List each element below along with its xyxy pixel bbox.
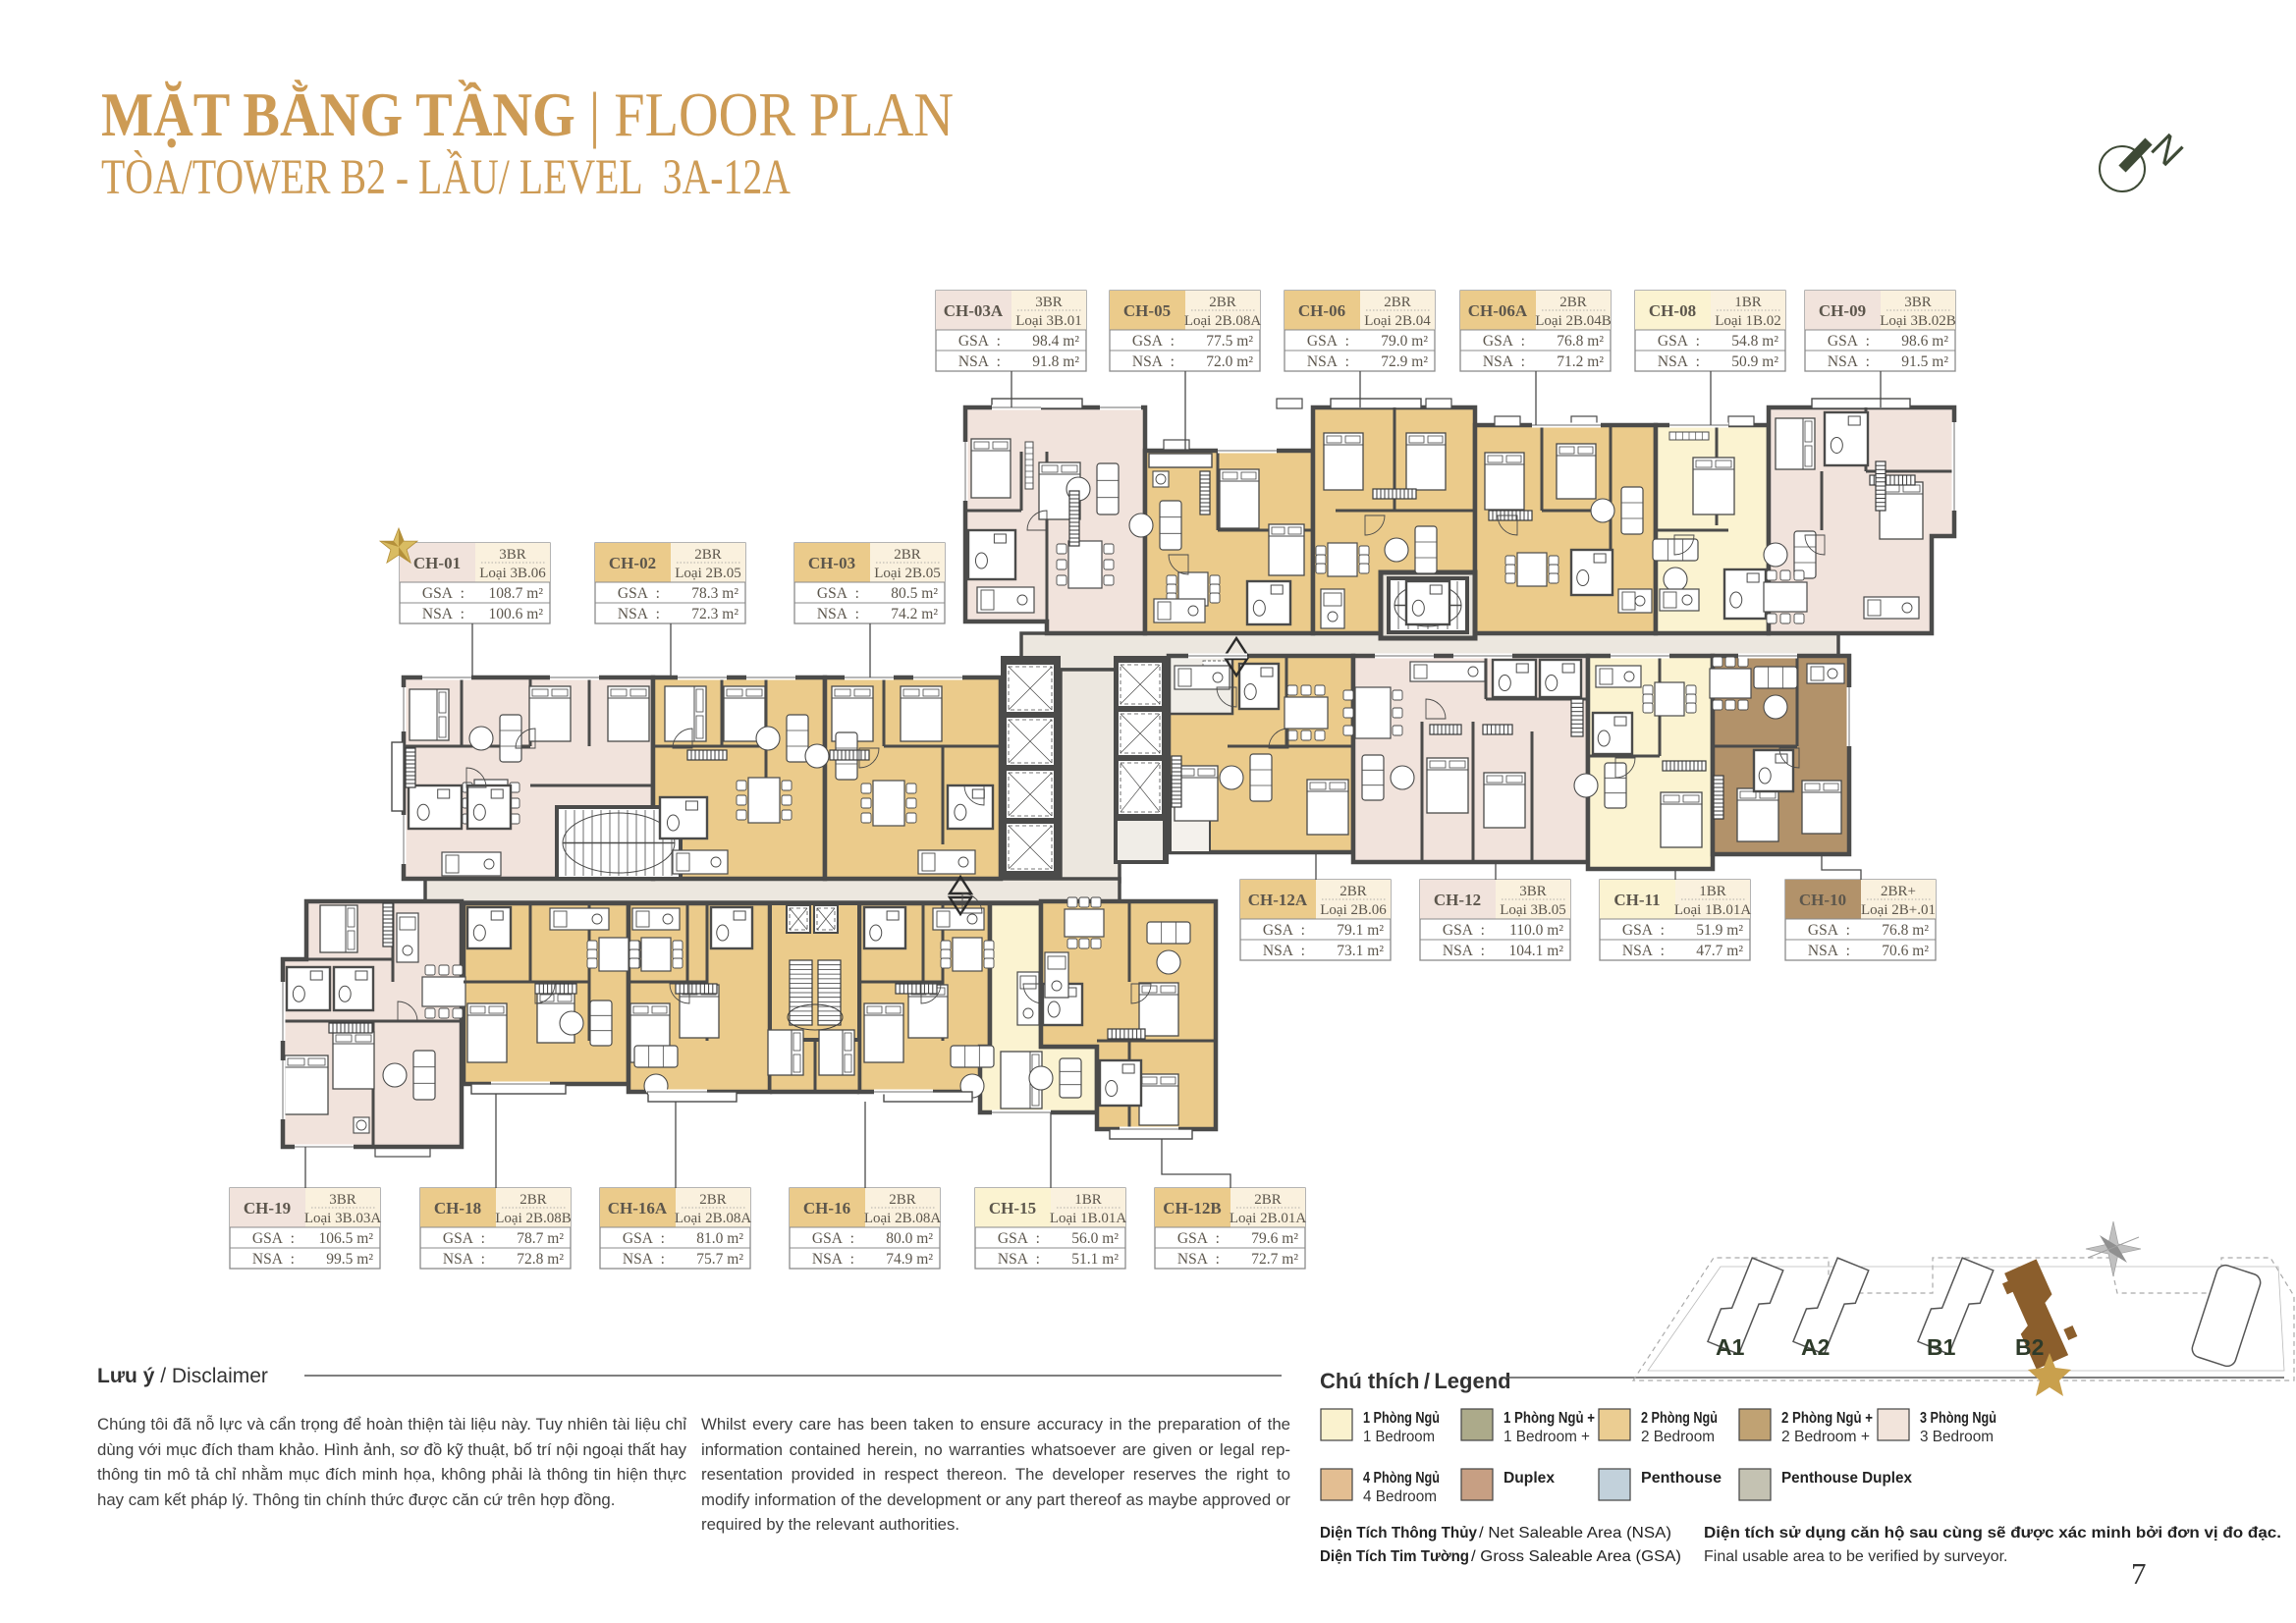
svg-text:GSA :: GSA : bbox=[1622, 922, 1665, 939]
svg-text:1 Bedroom: 1 Bedroom bbox=[1363, 1429, 1435, 1445]
svg-text:2 Phòng Ngủ: 2 Phòng Ngủ bbox=[1641, 1410, 1718, 1427]
svg-text:CH-18: CH-18 bbox=[434, 1199, 481, 1217]
svg-text:110.0 m²: 110.0 m² bbox=[1509, 922, 1563, 939]
svg-text:A1: A1 bbox=[1716, 1334, 1745, 1360]
svg-text:78.7 m²: 78.7 m² bbox=[517, 1230, 564, 1247]
svg-text:2BR: 2BR bbox=[1209, 295, 1236, 310]
svg-text:Chú thích / Legend: Chú thích / Legend bbox=[1320, 1369, 1511, 1393]
svg-text:51.9 m²: 51.9 m² bbox=[1696, 922, 1743, 939]
svg-text:/ Gross Saleable Area (GSA): / Gross Saleable Area (GSA) bbox=[1471, 1548, 1681, 1565]
svg-text:Loại 1B.02: Loại 1B.02 bbox=[1715, 313, 1781, 329]
svg-text:NSA :: NSA : bbox=[1658, 353, 1700, 370]
svg-text:GSA :: GSA : bbox=[1177, 1230, 1220, 1247]
svg-text:1BR: 1BR bbox=[1699, 884, 1726, 899]
svg-text:B1: B1 bbox=[1927, 1334, 1956, 1360]
svg-text:NSA :: NSA : bbox=[817, 606, 859, 622]
svg-text:74.2 m²: 74.2 m² bbox=[891, 606, 938, 622]
svg-text:NSA :: NSA : bbox=[998, 1251, 1040, 1268]
svg-text:3BR: 3BR bbox=[499, 547, 526, 563]
svg-text:76.8 m²: 76.8 m² bbox=[1882, 922, 1929, 939]
svg-text:NSA :: NSA : bbox=[443, 1251, 485, 1268]
svg-text:7: 7 bbox=[2131, 1556, 2147, 1591]
svg-text:79.0 m²: 79.0 m² bbox=[1381, 333, 1428, 350]
svg-text:CH-11: CH-11 bbox=[1613, 891, 1660, 909]
svg-text:GSA :: GSA : bbox=[812, 1230, 854, 1247]
svg-text:Loại 2B.08A: Loại 2B.08A bbox=[1184, 313, 1261, 329]
svg-text:Diện tích sử dụng căn hộ sau c: Diện tích sử dụng căn hộ sau cùng sẽ đượ… bbox=[1704, 1525, 2281, 1542]
svg-text:51.1 m²: 51.1 m² bbox=[1071, 1251, 1119, 1268]
svg-text:91.5 m²: 91.5 m² bbox=[1901, 353, 1948, 370]
svg-text:Loại 2B.04: Loại 2B.04 bbox=[1364, 313, 1431, 329]
svg-text:2 Bedroom +: 2 Bedroom + bbox=[1781, 1429, 1870, 1445]
svg-text:72.3 m²: 72.3 m² bbox=[691, 606, 738, 622]
svg-text:72.9 m²: 72.9 m² bbox=[1381, 353, 1428, 370]
svg-text:CH-15: CH-15 bbox=[989, 1199, 1036, 1217]
svg-text:Diện Tích Thông Thủy: Diện Tích Thông Thủy bbox=[1320, 1525, 1477, 1542]
svg-text:GSA :: GSA : bbox=[443, 1230, 485, 1247]
svg-text:Loại 3B.03A: Loại 3B.03A bbox=[304, 1211, 381, 1226]
svg-text:NSA :: NSA : bbox=[1177, 1251, 1220, 1268]
svg-text:Loại 2B+.01: Loại 2B+.01 bbox=[1861, 902, 1936, 918]
svg-text:54.8 m²: 54.8 m² bbox=[1731, 333, 1778, 350]
svg-text:GSA :: GSA : bbox=[1483, 333, 1525, 350]
svg-text:91.8 m²: 91.8 m² bbox=[1032, 353, 1079, 370]
svg-text:CH-16A: CH-16A bbox=[608, 1199, 668, 1217]
svg-text:CH-12B: CH-12B bbox=[1163, 1199, 1222, 1217]
svg-text:2BR: 2BR bbox=[694, 547, 722, 563]
svg-text:NSA :: NSA : bbox=[1828, 353, 1870, 370]
svg-text:4 Bedroom: 4 Bedroom bbox=[1363, 1488, 1437, 1505]
svg-text:3 Bedroom: 3 Bedroom bbox=[1920, 1429, 1994, 1445]
svg-text:74.9 m²: 74.9 m² bbox=[886, 1251, 933, 1268]
svg-text:GSA :: GSA : bbox=[1828, 333, 1870, 350]
svg-text:NSA :: NSA : bbox=[623, 1251, 665, 1268]
svg-text:NSA :: NSA : bbox=[1622, 943, 1665, 959]
svg-text:Duplex: Duplex bbox=[1503, 1470, 1555, 1487]
svg-text:2 Phòng Ngủ +: 2 Phòng Ngủ + bbox=[1781, 1410, 1873, 1427]
svg-text:NSA :: NSA : bbox=[1808, 943, 1850, 959]
svg-text:TÒA/TOWER B2 - LẦU/ LEVEL 3A-: TÒA/TOWER B2 - LẦU/ LEVEL 3A-12A bbox=[101, 149, 791, 205]
svg-text:72.8 m²: 72.8 m² bbox=[517, 1251, 564, 1268]
svg-text:Loại 3B.01: Loại 3B.01 bbox=[1015, 313, 1082, 329]
svg-text:108.7 m²: 108.7 m² bbox=[489, 585, 544, 602]
svg-text:NSA :: NSA : bbox=[1307, 353, 1349, 370]
svg-text:79.6 m²: 79.6 m² bbox=[1251, 1230, 1298, 1247]
svg-text:CH-03: CH-03 bbox=[808, 554, 855, 572]
svg-text:GSA :: GSA : bbox=[1307, 333, 1349, 350]
svg-text:GSA :: GSA : bbox=[252, 1230, 295, 1247]
svg-text:CH-02: CH-02 bbox=[609, 554, 656, 572]
svg-text:CH-12: CH-12 bbox=[1434, 891, 1481, 909]
svg-text:76.8 m²: 76.8 m² bbox=[1557, 333, 1604, 350]
svg-text:3BR: 3BR bbox=[1519, 884, 1547, 899]
svg-text:98.6 m²: 98.6 m² bbox=[1901, 333, 1948, 350]
svg-text:104.1 m²: 104.1 m² bbox=[1509, 943, 1564, 959]
svg-text:75.7 m²: 75.7 m² bbox=[696, 1251, 743, 1268]
svg-text:/ Net Saleable Area (NSA): / Net Saleable Area (NSA) bbox=[1479, 1525, 1671, 1542]
svg-text:Lưu ý / Disclaimer: Lưu ý / Disclaimer bbox=[97, 1365, 268, 1387]
svg-text:1 Phòng Ngủ: 1 Phòng Ngủ bbox=[1363, 1410, 1440, 1427]
svg-text:CH-12A: CH-12A bbox=[1248, 891, 1308, 909]
svg-text:Loại 2B.06: Loại 2B.06 bbox=[1320, 902, 1387, 918]
svg-text:GSA :: GSA : bbox=[998, 1230, 1040, 1247]
svg-text:2 Bedroom: 2 Bedroom bbox=[1641, 1429, 1715, 1445]
svg-text:98.4 m²: 98.4 m² bbox=[1032, 333, 1079, 350]
svg-text:Loại 2B.01A: Loại 2B.01A bbox=[1230, 1211, 1306, 1226]
svg-text:2BR: 2BR bbox=[1254, 1192, 1282, 1208]
svg-text:79.1 m²: 79.1 m² bbox=[1337, 922, 1384, 939]
svg-text:2BR+: 2BR+ bbox=[1881, 884, 1916, 899]
svg-text:2BR: 2BR bbox=[1339, 884, 1367, 899]
svg-text:NSA :: NSA : bbox=[1443, 943, 1485, 959]
svg-text:A2: A2 bbox=[1801, 1334, 1830, 1360]
svg-text:1 Phòng Ngủ +: 1 Phòng Ngủ + bbox=[1503, 1410, 1595, 1427]
svg-text:NSA :: NSA : bbox=[1483, 353, 1525, 370]
svg-text:Loại 2B.08B: Loại 2B.08B bbox=[495, 1211, 572, 1226]
svg-text:GSA :: GSA : bbox=[958, 333, 1001, 350]
svg-text:NSA :: NSA : bbox=[422, 606, 465, 622]
svg-text:CH-10: CH-10 bbox=[1799, 891, 1846, 909]
svg-text:2BR: 2BR bbox=[1559, 295, 1587, 310]
svg-text:CH-06A: CH-06A bbox=[1468, 301, 1528, 320]
svg-text:CH-05: CH-05 bbox=[1123, 301, 1171, 320]
svg-text:2BR: 2BR bbox=[1384, 295, 1411, 310]
svg-text:CH-03A: CH-03A bbox=[944, 301, 1004, 320]
svg-text:Loại 1B.01A: Loại 1B.01A bbox=[1050, 1211, 1126, 1226]
svg-text:50.9 m²: 50.9 m² bbox=[1731, 353, 1778, 370]
svg-text:Diện Tích Tim Tường: Diện Tích Tim Tường bbox=[1320, 1548, 1469, 1565]
svg-text:3BR: 3BR bbox=[329, 1192, 356, 1208]
svg-text:GSA :: GSA : bbox=[422, 585, 465, 602]
svg-text:56.0 m²: 56.0 m² bbox=[1071, 1230, 1119, 1247]
svg-text:GSA :: GSA : bbox=[618, 585, 660, 602]
svg-text:Loại 3B.05: Loại 3B.05 bbox=[1500, 902, 1566, 918]
svg-text:Penthouse: Penthouse bbox=[1641, 1470, 1722, 1487]
svg-text:1BR: 1BR bbox=[1074, 1192, 1102, 1208]
svg-text:GSA :: GSA : bbox=[1443, 922, 1485, 939]
svg-text:2BR: 2BR bbox=[889, 1192, 916, 1208]
svg-text:Loại 2B.08A: Loại 2B.08A bbox=[864, 1211, 941, 1226]
svg-text:2BR: 2BR bbox=[894, 547, 921, 563]
svg-text:73.1 m²: 73.1 m² bbox=[1337, 943, 1384, 959]
svg-text:GSA :: GSA : bbox=[1263, 922, 1305, 939]
svg-text:106.5 m²: 106.5 m² bbox=[319, 1230, 374, 1247]
svg-text:NSA :: NSA : bbox=[812, 1251, 854, 1268]
svg-text:77.5 m²: 77.5 m² bbox=[1206, 333, 1253, 350]
svg-text:Loại 1B.01A: Loại 1B.01A bbox=[1674, 902, 1751, 918]
svg-text:Loại 3B.02B: Loại 3B.02B bbox=[1880, 313, 1956, 329]
svg-text:Loại 2B.05: Loại 2B.05 bbox=[675, 566, 741, 581]
svg-text:2BR: 2BR bbox=[519, 1192, 547, 1208]
svg-text:MẶT BẰNG TẦNG | FLOOR PLAN: MẶT BẰNG TẦNG | FLOOR PLAN bbox=[101, 80, 954, 149]
svg-text:GSA :: GSA : bbox=[817, 585, 859, 602]
svg-text:GSA :: GSA : bbox=[1658, 333, 1700, 350]
svg-text:CH-06: CH-06 bbox=[1298, 301, 1345, 320]
svg-text:80.0 m²: 80.0 m² bbox=[886, 1230, 933, 1247]
svg-text:CH-09: CH-09 bbox=[1819, 301, 1866, 320]
svg-text:72.0 m²: 72.0 m² bbox=[1206, 353, 1253, 370]
svg-text:1 Bedroom +: 1 Bedroom + bbox=[1503, 1429, 1590, 1445]
svg-text:Final usable area to be verifi: Final usable area to be verified by surv… bbox=[1704, 1548, 2008, 1565]
svg-text:Loại 2B.04B: Loại 2B.04B bbox=[1535, 313, 1612, 329]
svg-text:Loại 3B.06: Loại 3B.06 bbox=[479, 566, 546, 581]
svg-text:NSA :: NSA : bbox=[1263, 943, 1305, 959]
svg-text:47.7 m²: 47.7 m² bbox=[1696, 943, 1743, 959]
svg-text:72.7 m²: 72.7 m² bbox=[1251, 1251, 1298, 1268]
svg-text:NSA :: NSA : bbox=[958, 353, 1001, 370]
svg-text:Loại 2B.05: Loại 2B.05 bbox=[874, 566, 941, 581]
svg-text:CH-16: CH-16 bbox=[803, 1199, 850, 1217]
svg-text:CH-08: CH-08 bbox=[1649, 301, 1696, 320]
svg-text:2BR: 2BR bbox=[699, 1192, 727, 1208]
svg-text:GSA :: GSA : bbox=[1132, 333, 1175, 350]
svg-text:CH-01: CH-01 bbox=[413, 554, 461, 572]
svg-text:80.5 m²: 80.5 m² bbox=[891, 585, 938, 602]
svg-text:71.2 m²: 71.2 m² bbox=[1557, 353, 1604, 370]
svg-text:NSA :: NSA : bbox=[618, 606, 660, 622]
svg-text:81.0 m²: 81.0 m² bbox=[696, 1230, 743, 1247]
svg-text:Loại 2B.08A: Loại 2B.08A bbox=[675, 1211, 751, 1226]
svg-text:GSA :: GSA : bbox=[623, 1230, 665, 1247]
svg-text:100.6 m²: 100.6 m² bbox=[489, 606, 544, 622]
svg-text:3BR: 3BR bbox=[1904, 295, 1932, 310]
svg-text:99.5 m²: 99.5 m² bbox=[326, 1251, 373, 1268]
svg-text:CH-19: CH-19 bbox=[244, 1199, 291, 1217]
svg-text:Penthouse Duplex: Penthouse Duplex bbox=[1781, 1470, 1912, 1487]
svg-text:70.6 m²: 70.6 m² bbox=[1882, 943, 1929, 959]
svg-text:3 Phòng Ngủ: 3 Phòng Ngủ bbox=[1920, 1410, 1996, 1427]
svg-text:GSA :: GSA : bbox=[1808, 922, 1850, 939]
svg-text:NSA :: NSA : bbox=[1132, 353, 1175, 370]
svg-text:NSA :: NSA : bbox=[252, 1251, 295, 1268]
svg-text:78.3 m²: 78.3 m² bbox=[691, 585, 738, 602]
svg-text:4 Phòng Ngủ: 4 Phòng Ngủ bbox=[1363, 1470, 1440, 1487]
svg-text:1BR: 1BR bbox=[1734, 295, 1762, 310]
svg-text:B2: B2 bbox=[2015, 1334, 2044, 1360]
svg-text:3BR: 3BR bbox=[1035, 295, 1063, 310]
